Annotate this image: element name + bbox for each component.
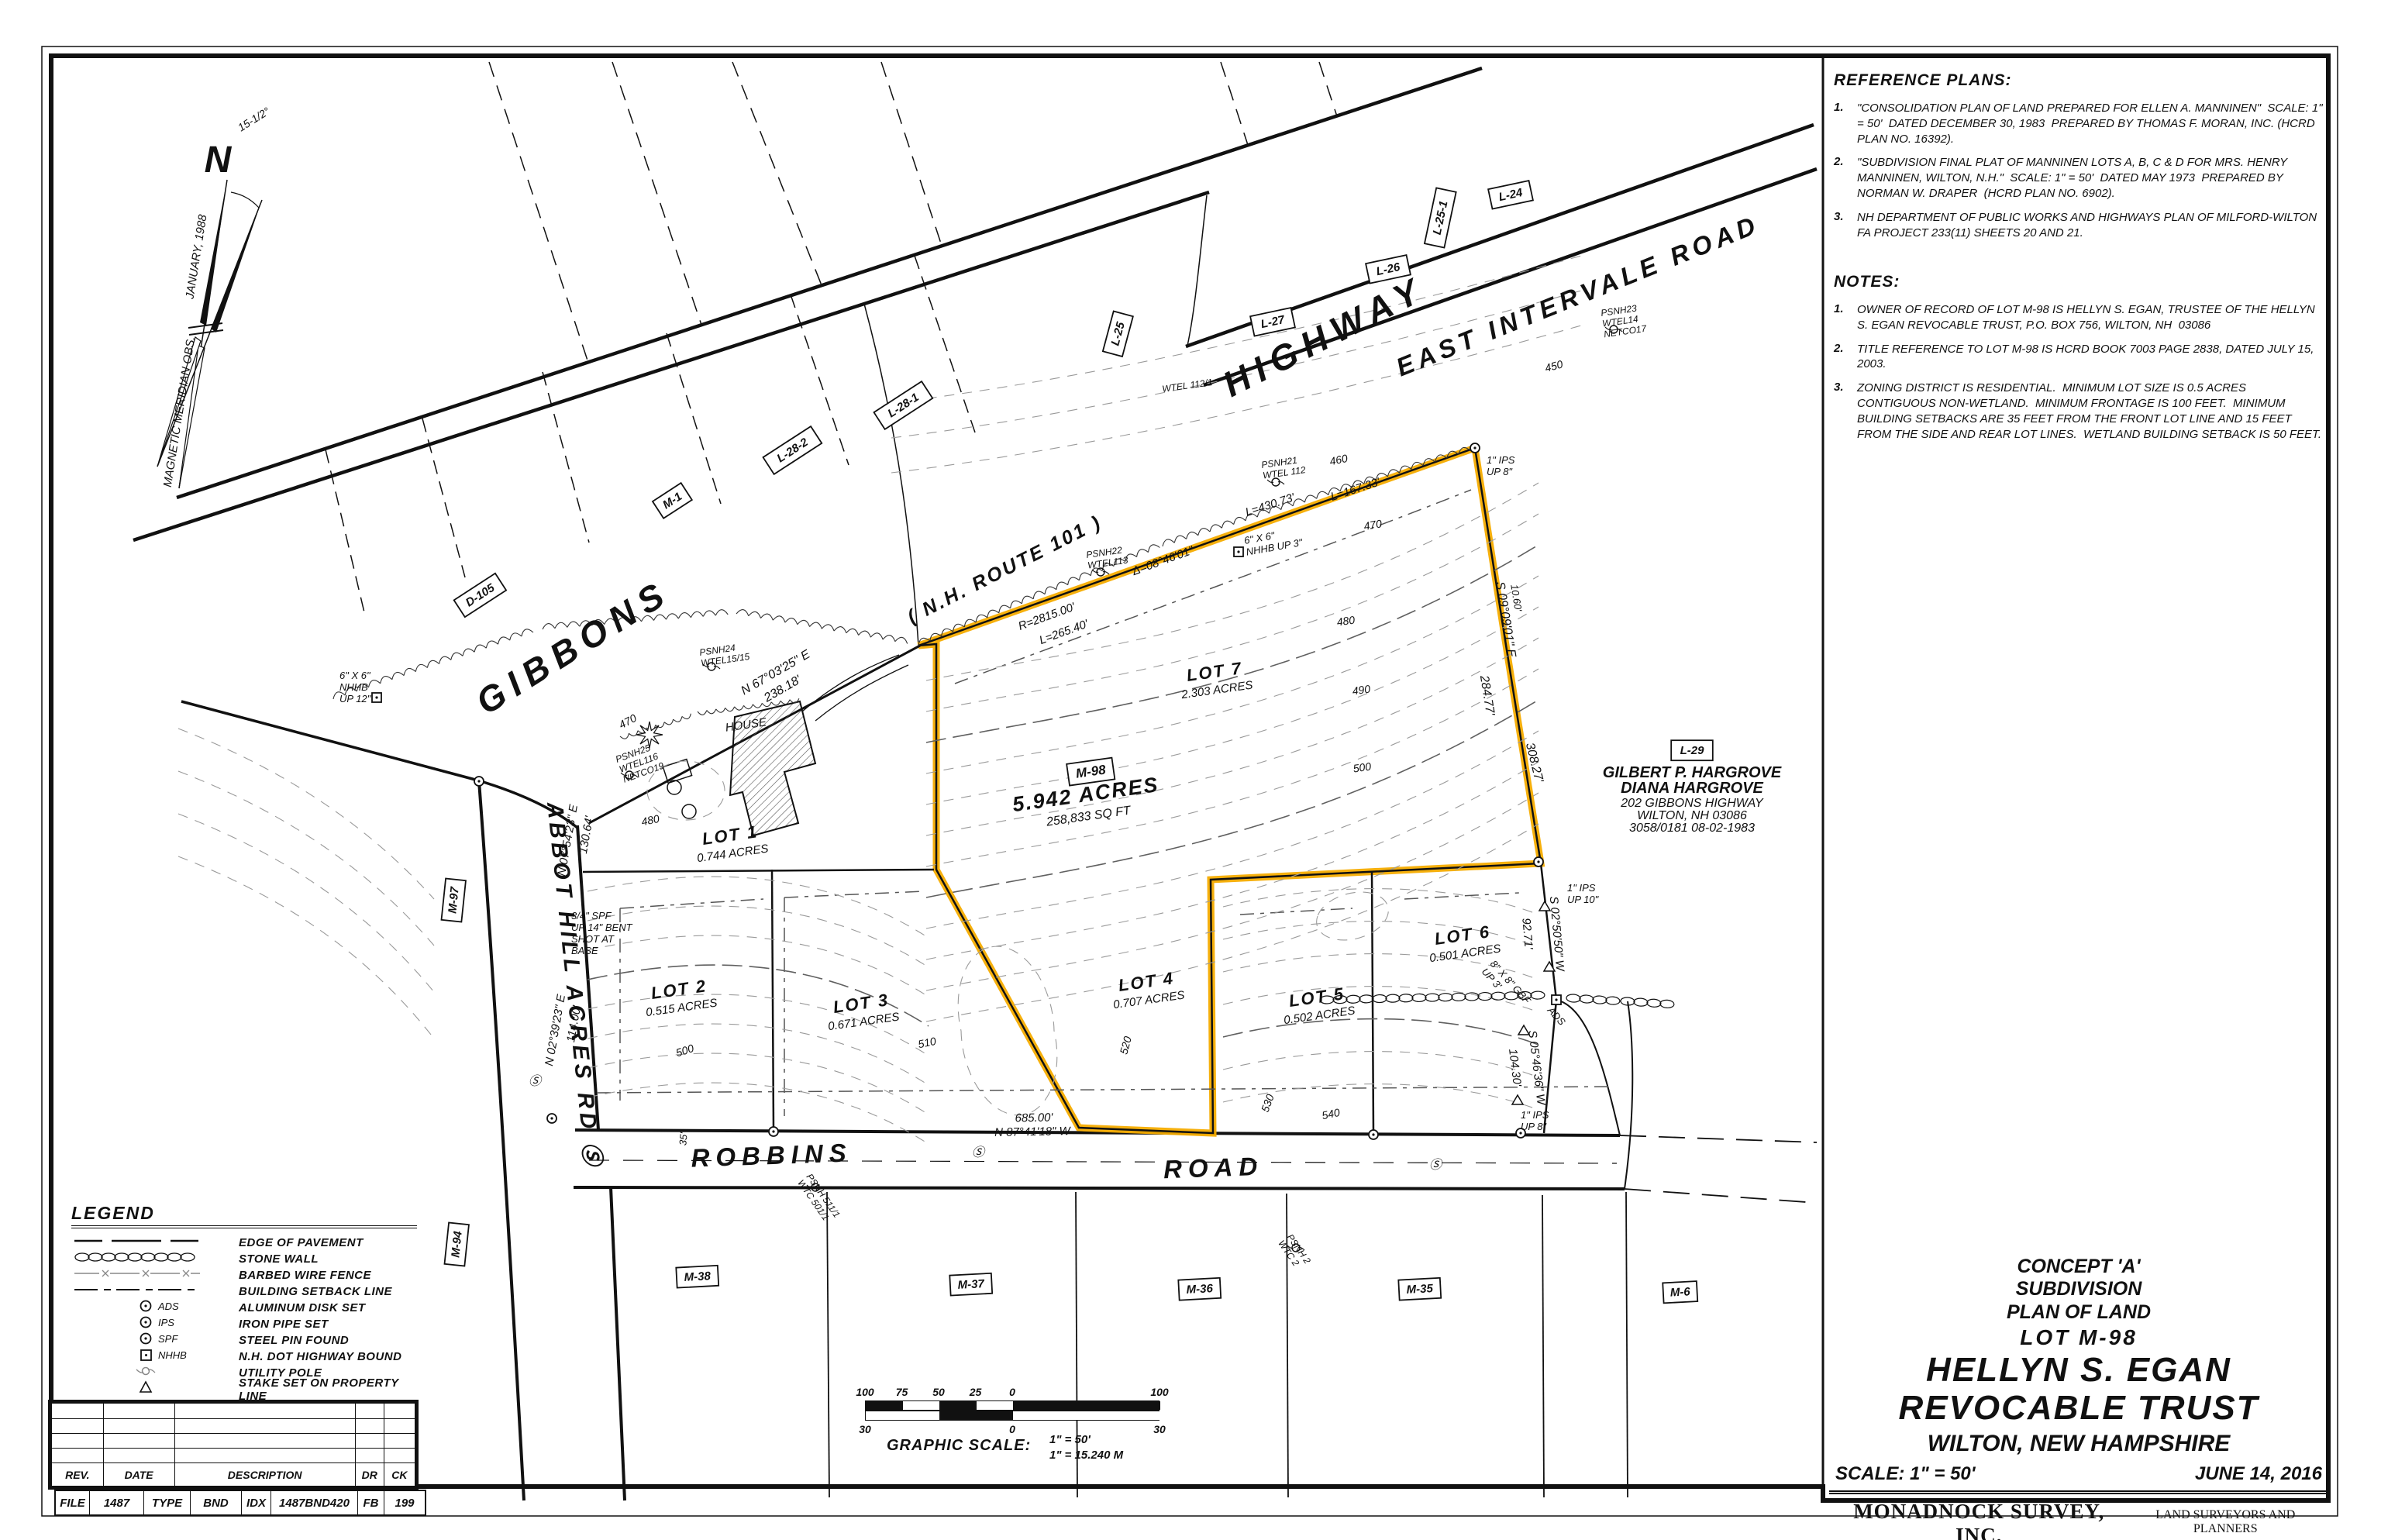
legend-label: BUILDING SETBACK LINE [239,1285,392,1298]
note-text: OWNER OF RECORD OF LOT M-98 IS HELLYN S.… [1857,302,2327,333]
svg-text:NHHB: NHHB [158,1349,187,1361]
revision-empty-cell [52,1404,104,1418]
scale-tick-meters: 30 [859,1423,871,1435]
revision-header: DR [356,1462,384,1486]
svg-text:104.30': 104.30' [1506,1048,1524,1088]
legend-items: EDGE OF PAVEMENTSTONE WALLBARBED WIRE FE… [71,1235,417,1397]
survey-point-note: 1" IPSUP 8" [1521,1109,1549,1132]
svg-text:500: 500 [674,1042,695,1059]
svg-text:S 05°46'36" W: S 05°46'36" W [1525,1029,1548,1107]
survey-point-note: PSNH 511/1WTC 501/1 [795,1172,842,1226]
svg-text:460: 460 [1328,452,1349,468]
svg-text:SPF: SPF [158,1333,178,1345]
svg-text:ROAD: ROAD [1163,1152,1263,1183]
svg-text:ADS: ADS [157,1301,179,1312]
contour-label: 450 [1543,357,1564,374]
survey-point-note: 3/4" SPFUP 14" BENTSHOT ATBASE [571,910,633,956]
svg-text:Ⓢ: Ⓢ [1429,1158,1443,1172]
legend-row: BUILDING SETBACK LINE [71,1283,417,1300]
legend-label: STAKE SET ON PROPERTY LINE [239,1376,417,1403]
notes-list: 1.OWNER OF RECORD OF LOT M-98 IS HELLYN … [1834,302,2327,442]
note-number: 2. [1834,342,1857,373]
plan-type: SUBDIVISION [1829,1278,2328,1301]
note-text: TITLE REFERENCE TO LOT M-98 IS HCRD BOOK… [1857,342,2327,373]
revision-header: REV. [52,1462,104,1486]
svg-text:490: 490 [1352,682,1372,697]
svg-text:3058/0181 08-02-1983: 3058/0181 08-02-1983 [1629,822,1755,835]
road-name-label: ROBBINS [691,1138,853,1172]
note-number: 1. [1834,302,1857,333]
svg-text:M-6: M-6 [1669,1285,1690,1299]
svg-text:WTEL 112/1: WTEL 112/1 [1161,377,1213,394]
contour-label: 490 [1352,682,1372,697]
revision-header: DATE [104,1462,175,1486]
bearing-label: 284.77' [1477,674,1497,717]
scale-tick-feet: 50 [932,1386,945,1398]
contour-label: 520 [1117,1035,1134,1056]
svg-text:Ⓢ: Ⓢ [972,1146,986,1159]
survey-point-note: ADS [1545,1004,1568,1028]
reference-plan-item: 3.NH DEPARTMENT OF PUBLIC WORKS AND HIGH… [1834,210,2327,241]
svg-text:202 GIBBONS HIGHWAY: 202 GIBBONS HIGHWAY [1620,797,1764,810]
bearing-label: 35' [677,1132,689,1146]
owner-name-2: REVOCABLE TRUST [1829,1391,2328,1426]
contour-label: 470 [617,711,639,731]
legend-row: SPFSTEEL PIN FOUND [71,1332,417,1349]
plan-kind: PLAN OF LAND [1829,1301,2328,1324]
file-strip-cell: BND [191,1491,242,1514]
parcel-tag: M-1 [653,483,692,519]
svg-text:Δ=08°46'01": Δ=08°46'01" [1130,543,1196,578]
svg-text:PSNH 511/1WTC 501/1: PSNH 511/1WTC 501/1 [795,1172,842,1226]
svg-text:PSNH23WTEL14NETCO17: PSNH23WTEL14NETCO17 [1600,301,1648,339]
revision-empty-cell [52,1448,104,1462]
reference-plan-item: 1."CONSOLIDATION PLAN OF LAND PREPARED F… [1834,101,2327,146]
svg-text:510: 510 [917,1035,937,1051]
revision-empty-cell [52,1418,104,1433]
svg-text:92.71': 92.71' [1519,918,1535,951]
bearing-label: N 87°41'18" W [994,1125,1072,1139]
file-strip-cell: 199 [384,1491,425,1514]
road-name-label: HIGHWAY [1216,268,1432,405]
legend-label: N.H. DOT HIGHWAY BOUND [239,1350,401,1363]
plan-lot: LOT M-98 [1829,1325,2328,1350]
svg-text:JANUARY, 1988: JANUARY, 1988 [183,213,209,301]
svg-text:GILBERT P. HARGROVE: GILBERT P. HARGROVE [1603,764,1782,781]
svg-text:530: 530 [1259,1092,1277,1114]
contour-label: 500 [674,1042,695,1059]
svg-text:520: 520 [1117,1035,1134,1056]
revision-empty-cell [356,1448,384,1462]
svg-text:HIGHWAY: HIGHWAY [1216,268,1432,405]
legend-label: STONE WALL [239,1252,319,1266]
note-item: 3.ZONING DISTRICT IS RESIDENTIAL. MINIMU… [1834,381,2327,442]
scale-tick-meters: 30 [1153,1423,1166,1435]
graphic-scale-ratios: 1" = 50' 1" = 15.240 M [1049,1432,1123,1462]
legend-label: ALUMINUM DISK SET [239,1301,366,1314]
revision-empty-cell [104,1448,175,1462]
parcel-tag: M-36 [1178,1278,1221,1301]
contour-label: 480 [640,812,660,829]
reference-plan-number: 1. [1834,101,1857,146]
plan-date: JUNE 14, 2016 [2195,1463,2322,1485]
revision-empty-cell [384,1448,415,1462]
map-label: JANUARY, 1988 [183,213,209,301]
parcel-tag: M-38 [676,1266,718,1288]
bearing-label: Δ=08°46'01" [1130,543,1196,578]
stake-icon [71,1380,239,1399]
parcel-tag: L-25-1 [1425,188,1456,247]
abutter-owner-block: GILBERT P. HARGROVEDIANA HARGROVE202 GIB… [1603,764,1782,835]
svg-text:500: 500 [1352,760,1373,774]
lot-label: LOT 20.515 ACRES [642,975,718,1019]
contour-lines [178,256,1581,1144]
svg-text:N 02°39'23" E: N 02°39'23" E [543,993,568,1067]
notes-title: NOTES: [1834,273,2327,291]
parcel-tag: L-28-2 [763,426,822,474]
svg-text:540: 540 [1321,1106,1341,1122]
contour-label: 480 [1336,613,1356,628]
survey-point-note: 1" IPSUP 10" [1567,882,1600,905]
svg-text:M-35: M-35 [1406,1282,1434,1297]
legend-row: IPSIRON PIPE SET [71,1316,417,1332]
svg-text:470: 470 [617,711,639,731]
revision-table: REV.DATEDESCRIPTIONDRCK [48,1400,419,1490]
svg-text:450: 450 [1543,357,1564,374]
svg-text:130.64': 130.64' [577,815,596,855]
revision-empty-cell [356,1433,384,1448]
graphic-scale-ratio-meters: 1" = 15.240 M [1049,1448,1123,1463]
revision-empty-cell [356,1418,384,1433]
svg-text:1" IPSUP 10": 1" IPSUP 10" [1567,882,1600,905]
revision-empty-cell [175,1433,356,1448]
survey-point-note: WTEL 112/1 [1161,377,1213,394]
svg-text:Ⓢ: Ⓢ [529,1074,543,1088]
svg-text:L=167.33': L=167.33' [1329,475,1383,504]
parcel-tag: M-94 [444,1222,468,1266]
svg-text:IPS: IPS [158,1317,174,1328]
bearing-label: 92.71' [1519,918,1535,951]
svg-text:1" IPSUP 8": 1" IPSUP 8" [1521,1109,1549,1132]
svg-text:470: 470 [1363,517,1383,532]
lot-label: LOT 60.501 ACRES [1425,921,1501,965]
svg-text:ROBBINS: ROBBINS [691,1138,853,1172]
parcel-tag: M-97 [441,878,465,922]
svg-text:284.77': 284.77' [1477,674,1497,717]
svg-text:M-37: M-37 [957,1277,985,1292]
bearing-label: 130.64' [577,815,596,855]
contour-label: 470 [1363,517,1383,532]
svg-text:ADS: ADS [1545,1004,1568,1028]
svg-text:N: N [205,140,233,181]
graphic-scale-ratio-feet: 1" = 50' [1049,1432,1123,1448]
map-symbols [333,326,1674,1252]
revision-empty-cell [104,1404,175,1418]
svg-text:N 87°41'18" W: N 87°41'18" W [994,1125,1072,1139]
contour-label: 500 [1352,760,1373,774]
lot-label: LOT 40.707 ACRES [1109,967,1185,1011]
svg-text:685.00': 685.00' [1015,1111,1053,1125]
owner-name-1: HELLYN S. EGAN [1829,1353,2328,1388]
bearing-label: L=167.33' [1329,475,1383,504]
reference-plan-number: 2. [1834,155,1857,201]
road-name-label: EAST INTERVALE ROAD [1392,209,1763,381]
file-index-strip: FILE1487TYPEBNDIDX1487BND420FB199 [54,1490,426,1516]
scale-tick-meters: 0 [1009,1423,1015,1435]
note-text: ZONING DISTRICT IS RESIDENTIAL. MINIMUM … [1857,381,2327,442]
plan-scale: SCALE: 1" = 50' [1835,1463,1975,1485]
file-strip-cell: TYPE [144,1491,191,1514]
svg-text:PSNH25WTEL116NETCO19: PSNH25WTEL116NETCO19 [614,740,666,785]
svg-text:L-29: L-29 [1680,744,1705,757]
bearing-label: N 02°39'23" E [543,993,568,1067]
svg-text:M-97: M-97 [446,886,462,914]
graphic-scale: 100755025010030030 GRAPHIC SCALE: 1" = 5… [865,1386,1167,1479]
revision-empty-cell [384,1418,415,1433]
survey-point-note: 8" X 8" GBFUP 3' [1480,958,1534,1015]
legend-row: EDGE OF PAVEMENT [71,1235,417,1251]
bearing-label: S 05°46'36" W [1525,1029,1548,1107]
svg-text:480: 480 [1336,613,1356,628]
file-strip-cell: 1487BND420 [271,1491,358,1514]
map-label: Ⓢ [972,1146,986,1159]
contour-label: 530 [1259,1092,1277,1114]
lot-label: LOT 72.303 ACRES [1177,657,1253,702]
contour-label: 510 [917,1035,937,1051]
map-labels: GIBBONSHIGHWAY( N.H. ROUTE 101 )EAST INT… [161,105,1782,1304]
survey-point-note: 6" X 6"NHHBUP 12" [339,670,372,705]
revision-empty-cell [175,1404,356,1418]
parcel-boundary-m98 [918,448,1541,1133]
plan-location: WILTON, NEW HAMPSHIRE [1829,1431,2328,1457]
svg-text:EAST INTERVALE ROAD: EAST INTERVALE ROAD [1392,209,1763,381]
legend-row: STAKE SET ON PROPERTY LINE [71,1381,417,1397]
reference-plans-list: 1."CONSOLIDATION PLAN OF LAND PREPARED F… [1834,101,2327,240]
firm-row: MONADNOCK SURVEY, INC. LAND SURVEYORS AN… [1829,1500,2328,1540]
revision-empty-cell [52,1433,104,1448]
revision-header: DESCRIPTION [175,1462,356,1486]
map-label: Ⓢ [529,1074,543,1088]
survey-point-note: PSNH 2WTC 2 [1276,1232,1313,1273]
legend-label: STEEL PIN FOUND [239,1334,349,1347]
svg-text:WILTON, NH 03086: WILTON, NH 03086 [1637,809,1747,822]
svg-text:1" IPSUP 8": 1" IPSUP 8" [1487,454,1515,477]
parcel-tag: M-37 [949,1273,992,1296]
reference-plans-title: REFERENCE PLANS: [1834,71,2327,90]
parcel-tag: L-25 [1103,312,1133,357]
survey-point-note: PSNH22WTEL113 [1085,544,1128,571]
svg-text:3/4" SPFUP 14" BENTSHOT ATBASE: 3/4" SPFUP 14" BENTSHOT ATBASE [571,910,633,956]
parcel-tag: L-24 [1488,181,1533,209]
note-number: 3. [1834,381,1857,442]
revision-empty-cell [104,1433,175,1448]
reference-plan-item: 2."SUBDIVISION FINAL PLAT OF MANNINEN LO… [1834,155,2327,201]
reference-plans-panel: REFERENCE PLANS: 1."CONSOLIDATION PLAN O… [1834,71,2327,249]
legend-label: IRON PIPE SET [239,1318,329,1331]
firm-tagline: LAND SURVEYORS AND PLANNERS [2126,1508,2326,1536]
road-name-label: ROAD [1163,1152,1263,1183]
scale-tick-feet: 100 [856,1386,873,1398]
plan-concept: CONCEPT 'A' [1829,1256,2328,1278]
svg-text:8" X 8" GBFUP 3': 8" X 8" GBFUP 3' [1480,958,1534,1015]
graphic-scale-caption: GRAPHIC SCALE: [887,1437,1031,1455]
note-item: 2.TITLE REFERENCE TO LOT M-98 IS HCRD BO… [1834,342,2327,373]
firm-name: MONADNOCK SURVEY, INC. [1832,1500,2126,1540]
survey-point-note: PSNH25WTEL116NETCO19 [614,740,666,785]
note-item: 1.OWNER OF RECORD OF LOT M-98 IS HELLYN … [1834,302,2327,333]
map-label: 15-1/2° [236,105,272,134]
svg-text:PSNH24WTEL15/15: PSNH24WTEL15/15 [698,640,750,668]
svg-text:PSNH21WTEL 112: PSNH21WTEL 112 [1260,453,1306,481]
reference-plan-number: 3. [1834,210,1857,241]
reference-plan-text: "SUBDIVISION FINAL PLAT OF MANNINEN LOTS… [1857,155,2327,201]
lot-lines [583,646,1556,1133]
bearing-label: 685.00' [1015,1111,1053,1125]
scale-date-row: SCALE: 1" = 50' JUNE 14, 2016 [1829,1463,2328,1494]
svg-text:PSNH 2WTC 2: PSNH 2WTC 2 [1276,1232,1313,1273]
contour-label: 460 [1328,452,1349,468]
notes-panel: NOTES: 1.OWNER OF RECORD OF LOT M-98 IS … [1834,273,2327,450]
legend-label: EDGE OF PAVEMENT [239,1236,364,1249]
file-strip-cell: 1487 [90,1491,144,1514]
map-label: Ⓢ [1429,1158,1443,1172]
svg-text:DIANA HARGROVE: DIANA HARGROVE [1621,780,1763,797]
svg-text:480: 480 [640,812,660,829]
legend-row: BARBED WIRE FENCE [71,1267,417,1283]
reference-plan-text: "CONSOLIDATION PLAN OF LAND PREPARED FOR… [1857,101,2327,146]
survey-point-note: PSNH23WTEL14NETCO17 [1600,301,1648,339]
svg-text:15-1/2°: 15-1/2° [236,105,272,134]
svg-text:M-36: M-36 [1186,1282,1214,1297]
scale-tick-feet: 75 [896,1386,908,1398]
revision-header: CK [384,1462,415,1486]
survey-point-note: PSNH21WTEL 112 [1260,453,1306,481]
revision-empty-cell [384,1433,415,1448]
lot-label: LOT 30.671 ACRES [824,989,900,1033]
legend: LEGEND EDGE OF PAVEMENTSTONE WALLBARBED … [71,1203,417,1397]
scale-tick-feet: 25 [970,1386,982,1398]
title-block: CONCEPT 'A' SUBDIVISION PLAN OF LAND LOT… [1829,1256,2328,1540]
plan-sheet: GIBBONSHIGHWAY( N.H. ROUTE 101 )EAST INT… [0,0,2381,1540]
contour-label: 540 [1321,1106,1341,1122]
revision-empty-cell [384,1404,415,1418]
bearing-label: 104.30' [1506,1048,1524,1088]
parcel-tag: L-28-1 [874,381,933,429]
reference-plan-text: NH DEPARTMENT OF PUBLIC WORKS AND HIGHWA… [1857,210,2327,241]
legend-label: BARBED WIRE FENCE [239,1269,371,1282]
parcel-tag: D-105 [454,574,506,617]
survey-point-note: PSNH24WTEL15/15 [698,640,750,668]
file-strip-cell: IDX [242,1491,271,1514]
parcel-tag: L-29 [1671,740,1713,760]
legend-title: LEGEND [71,1203,417,1228]
svg-text:M-38: M-38 [684,1270,712,1284]
legend-row: ADSALUMINUM DISK SET [71,1300,417,1316]
svg-text:6" X 6"NHHBUP 12": 6" X 6"NHHBUP 12" [339,670,372,705]
parcel-tag: M-6 [1663,1281,1697,1303]
legend-row: NHHBN.H. DOT HIGHWAY BOUND [71,1349,417,1365]
revision-empty-cell [175,1418,356,1433]
revision-empty-cell [356,1404,384,1418]
svg-text:PSNH22WTEL113: PSNH22WTEL113 [1085,544,1128,571]
scale-tick-feet: 0 [1009,1386,1015,1398]
map-label: N [205,140,233,181]
legend-row: STONE WALL [71,1251,417,1267]
svg-text:35': 35' [677,1132,689,1146]
file-strip-cell: FILE [56,1491,90,1514]
survey-point-note: 1" IPSUP 8" [1487,454,1515,477]
svg-text:M-94: M-94 [449,1230,465,1258]
revision-empty-cell [104,1418,175,1433]
parcel-tag: M-35 [1398,1278,1441,1301]
lot-label: LOT 50.502 ACRES [1280,983,1356,1027]
revision-empty-cell [175,1448,356,1462]
scale-tick-feet: 100 [1150,1386,1168,1398]
file-strip-cell: FB [358,1491,384,1514]
